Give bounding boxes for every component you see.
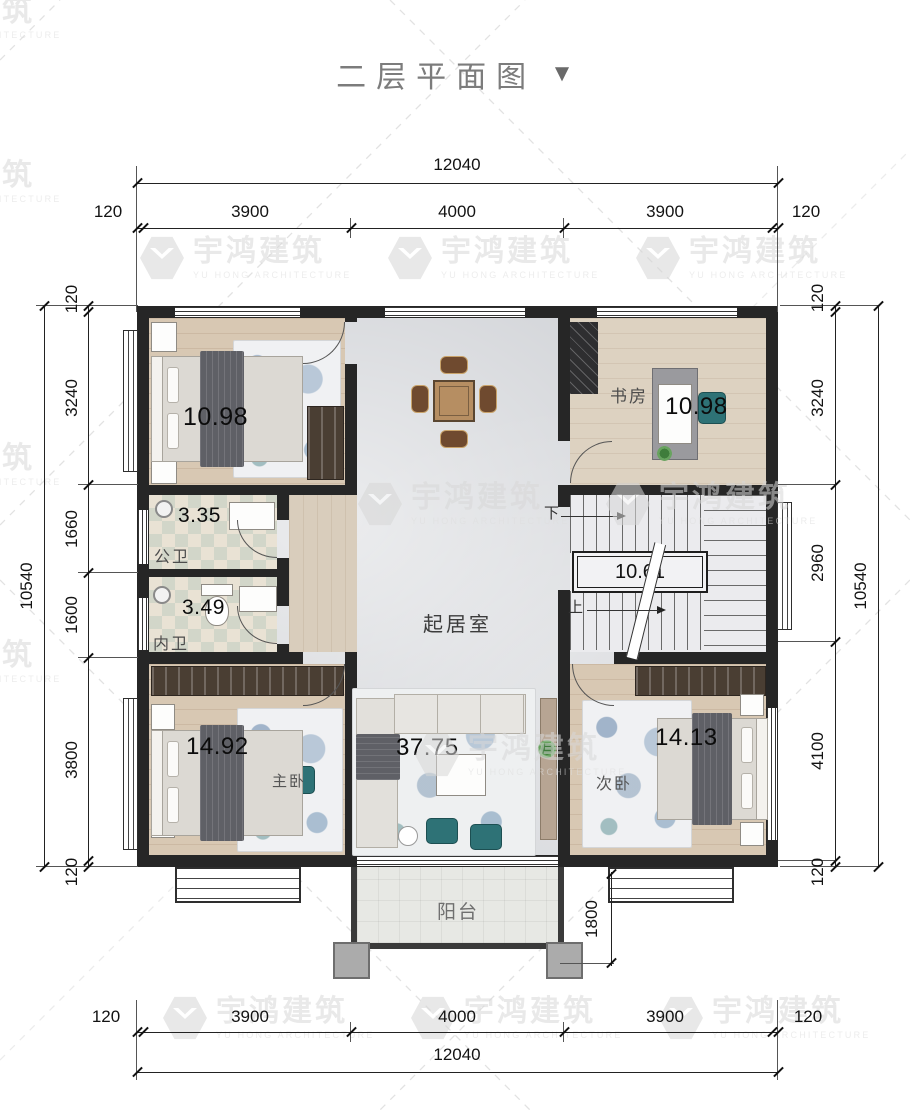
window-bay [175,867,301,903]
dim-label: 3240 [64,358,80,438]
dim-line-right-total [878,306,879,867]
dim-line-right-segments [835,306,836,867]
wall-interior [345,364,357,485]
wall-interior [558,318,570,441]
shower-head [155,500,173,518]
pillow [167,367,179,403]
dining-chair [479,385,497,413]
nightstand [740,694,764,716]
dim-label: 3900 [200,203,300,221]
bedroom-second-area: 14.13 [655,724,718,752]
sofa [394,694,526,734]
living-room-label: 起居室 [423,608,492,637]
dim-label: 120 [810,832,826,912]
nightstand [151,704,175,730]
dim-label: 120 [810,258,826,338]
wall-interior [558,485,766,495]
dim-line-bottom-total [137,1072,778,1073]
column [546,942,583,979]
bath-public-label: 公卫 [154,543,190,567]
dim-label: 120 [88,203,128,221]
dim-label: 120 [788,1008,828,1026]
bedroom-top-left-area: 10.98 [183,403,248,432]
dim-label: 12040 [377,1046,537,1064]
dim-label: 4000 [407,203,507,221]
throw-blanket [356,734,400,780]
dim-line-top-total [137,183,778,184]
extension-line [778,484,836,485]
dim-label: 4100 [810,711,826,791]
nightstand [740,822,764,846]
bookshelf [570,322,598,394]
wall-interior [277,558,289,606]
bath-inner-label: 内卫 [153,630,189,654]
wall-outer-left [137,306,149,867]
dim-label: 3900 [615,1008,715,1026]
dim-label: 3900 [615,203,715,221]
window-bay [123,698,138,850]
side-table [398,826,418,846]
dining-chair [440,430,468,448]
bedroom-second-label: 次卧 [596,770,632,794]
wardrobe [307,406,344,480]
window-bay [608,867,734,903]
armchair [426,818,458,844]
title-text: 二层平面图 [336,52,536,96]
dining-chair [440,356,468,374]
bath-inner-area: 3.49 [182,596,225,620]
dim-label: 10540 [19,546,35,626]
dim-label: 2960 [810,523,826,603]
wall-interior [345,652,357,664]
study-label: 书房 [610,382,648,407]
window [767,708,777,840]
hallway-floor [289,495,357,652]
window [597,307,737,317]
dim-label: 4000 [407,1008,507,1026]
dim-line-left-segments [88,306,89,867]
stair-flight-upper [570,495,704,553]
bed-headboard [152,731,163,835]
window [175,307,300,317]
dim-label: 12040 [377,156,537,174]
extension-line [136,166,137,312]
bed-headboard [152,357,163,461]
window [138,510,148,564]
balcony-sliding-door [357,856,558,866]
shower-head [153,586,171,604]
armchair [470,824,502,850]
plant [657,446,672,461]
window-bay [123,330,138,472]
dim-label: 120 [64,832,80,912]
floor-plan: 10.61 下 上 10.98 书房 10.98 3.35 公卫 3.49 内卫… [137,306,778,867]
extension-line [136,1000,137,1080]
dim-line-balcony [611,872,612,966]
window [385,307,525,317]
wall-interior [558,652,570,664]
stair-up-label: 上 [568,596,585,617]
wall-interior [149,485,357,495]
pillow [741,727,753,763]
balcony: 阳台 [351,867,564,949]
wall-interior [558,664,570,855]
extension-line [780,305,880,306]
tv-console [540,698,557,840]
plant [538,740,556,758]
dim-label: 3800 [64,720,80,800]
dim-label: 1800 [584,879,600,959]
title-arrow-icon: ▼ [550,60,574,88]
stair-down-label: 下 [544,502,561,523]
dim-label: 1600 [64,575,80,655]
pillow [167,413,179,449]
dim-label: 1660 [64,489,80,569]
wardrobe [635,666,766,696]
bath-public-area: 3.35 [178,504,221,528]
dim-label: 3900 [200,1008,300,1026]
extension-line [560,963,614,964]
dim-line-top-segments [137,228,778,229]
balcony-label: 阳台 [437,897,479,924]
nightstand [151,460,177,484]
dining-chair [411,385,429,413]
living-room-area: 37.75 [396,734,459,762]
master-bedroom-label: 主卧 [272,770,306,791]
study-area: 10.98 [665,393,728,421]
extension-line [780,866,880,867]
toilet-tank [201,584,233,596]
pillow [741,773,753,809]
stair-down-arrow-line [561,516,619,517]
stair-landing: 10.61 [572,551,708,593]
dim-label: 120 [64,259,80,339]
dim-line-bottom-segments [137,1032,778,1033]
wall-interior [149,569,289,577]
pillow [167,741,179,777]
stair-side-landing [704,495,766,652]
dim-label: 10540 [853,546,869,626]
window-bay [777,502,792,630]
bed-headboard [756,719,767,819]
dining-table [433,380,475,422]
extension-line [777,166,778,312]
dim-label: 120 [86,1008,126,1026]
page-title: 二层平面图 ▼ [0,52,910,96]
dim-label: 3240 [810,358,826,438]
master-bedroom-area: 14.92 [186,733,249,761]
column [333,942,370,979]
extension-line [778,641,836,642]
window [138,598,148,650]
wall-interior [277,644,289,652]
dim-label: 120 [786,203,826,221]
floor-plan-page: 宇鸿建筑YU HONG ARCHITECTURE 宇鸿建筑YU HONG ARC… [0,0,910,1114]
stair-up-arrow-line [587,610,659,611]
wall-interior [277,495,289,520]
pillow [167,787,179,823]
dim-line-left-total [44,306,45,867]
extension-line [777,1000,778,1080]
wall-interior [345,318,357,322]
nightstand [151,322,177,352]
